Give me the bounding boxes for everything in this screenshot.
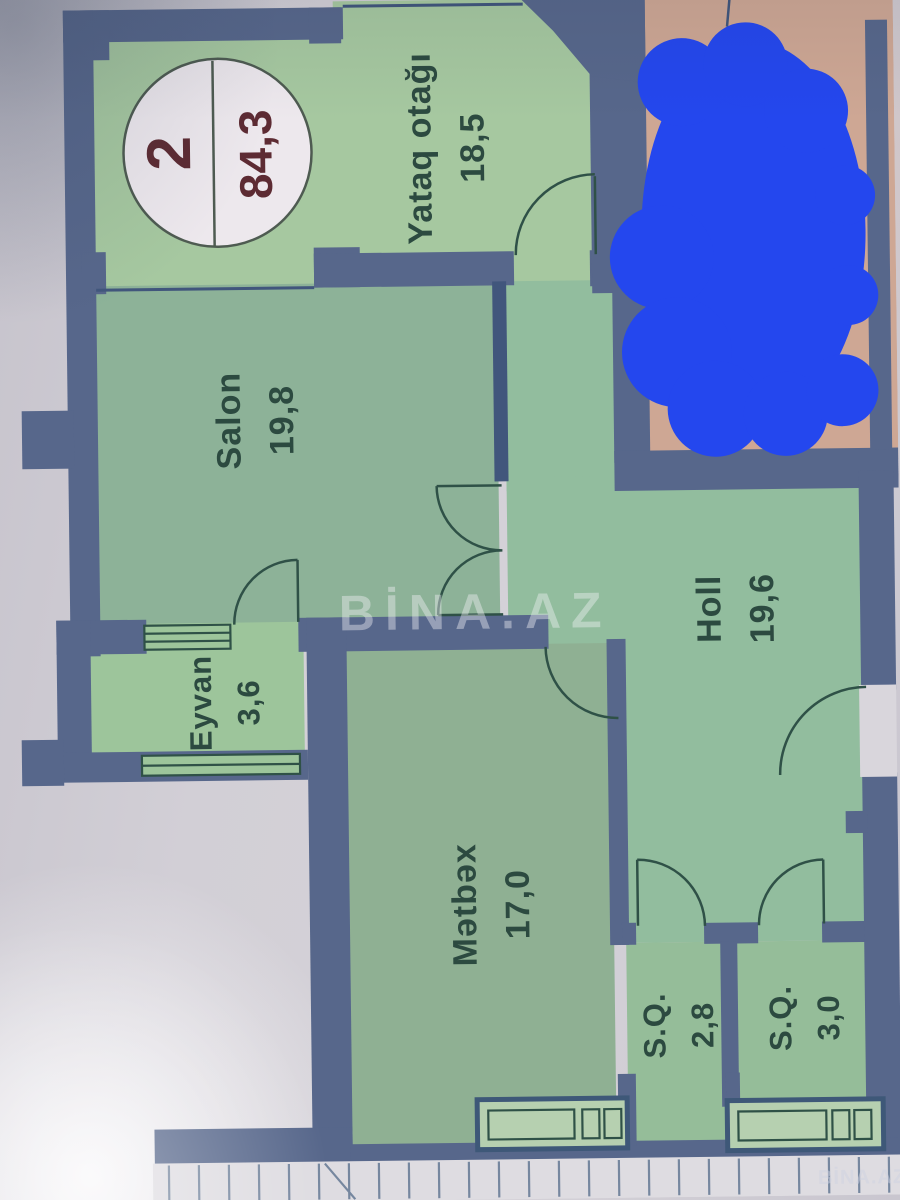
watermark-corner: BİNA.AZ [818,1166,900,1190]
room-name: S.Q. [757,985,806,1052]
room-name: S.Q. [631,992,680,1059]
room-area: 19,8 [255,371,309,469]
entry-door-gap [859,685,897,777]
floor-plan-photo: 2 84,3 Yataq otağı 18,5 Salon 19,8 Eyvan… [0,0,900,1200]
watermark-center: BİNA.AZ [338,581,611,642]
label-yataq-otagi: Yataq otağı 18,5 [393,51,501,245]
room-area: 18,5 [445,51,500,244]
label-holl: Holl 19,6 [683,573,789,644]
room-holl-lower-fill [624,640,868,943]
scribble-annotation [607,21,880,458]
badge-room-count: 2 [134,136,205,171]
room-corridor-fill [504,280,619,491]
room-area: 3,0 [805,984,854,1051]
room-name: Yataq otağı [393,52,448,245]
eyvan-top-window [144,625,230,650]
sq-bottom-window [727,1099,884,1151]
room-name: Salon [203,372,257,470]
room-area: 19,6 [736,573,790,644]
badge-total-area: 84,3 [228,109,283,199]
label-salon: Salon 19,8 [203,371,310,470]
label-sq-large: S.Q. 3,0 [757,984,854,1051]
label-metbex: Mətbəx 17,0 [438,842,545,966]
floor-plan: 2 84,3 Yataq otağı 18,5 Salon 19,8 Eyvan… [0,0,900,1200]
room-name: Eyvan [177,655,226,752]
room-area: 3,6 [225,654,274,751]
room-area: 2,8 [679,992,728,1059]
kitchen-bottom-window [477,1098,628,1150]
room-name: Holl [683,573,737,644]
label-sq-small: S.Q. 2,8 [631,992,728,1059]
room-area: 17,0 [491,842,545,966]
room-name: Mətbəx [438,843,492,967]
eyvan-bottom-window [142,754,300,776]
label-eyvan: Eyvan 3,6 [177,654,274,752]
